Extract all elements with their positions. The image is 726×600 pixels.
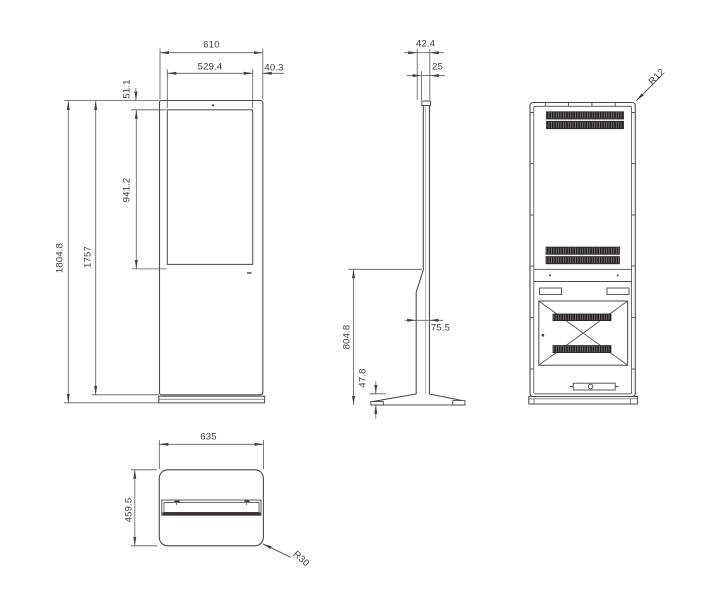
- rear-slot-left: [540, 288, 562, 295]
- dim-front-width-label: 610: [203, 39, 219, 50]
- dim-body-height-label: 1757: [82, 246, 93, 268]
- front-camera-dot: [212, 104, 214, 106]
- dim-side-offset-label: 40.3: [264, 62, 283, 73]
- dim-base-height-label: 47.8: [357, 368, 368, 387]
- rear-top-vent-grille: [547, 112, 624, 119]
- dim-depth-top-label: 42.4: [416, 38, 435, 49]
- dim-base-depth-label: 459.5: [123, 497, 134, 522]
- rear-panel-vent-grille: [553, 346, 611, 353]
- rear-slot-right: [607, 288, 629, 295]
- dim-base-width-label: 635: [200, 431, 216, 442]
- bottom-dimensions: [131, 440, 264, 546]
- dim-top-offset-label: 51.1: [121, 79, 132, 98]
- kiosk-technical-drawing: 610 529.4 40.3 51.1 941.2 1804.8 1757 42…: [0, 0, 726, 600]
- bottom-base-band-inner: [164, 503, 259, 513]
- side-view: [371, 101, 465, 405]
- side-pole-slant: [416, 270, 423, 292]
- r30-leader: [263, 544, 291, 557]
- front-dimensions: [64, 49, 284, 403]
- rear-handle: [573, 383, 615, 390]
- front-body-outline: [160, 101, 263, 395]
- dim-screen-height-label: 941.2: [122, 177, 133, 202]
- rear-screw-dot: [549, 274, 551, 276]
- rear-handle-lock: [588, 384, 593, 389]
- rear-view: [529, 103, 638, 405]
- dim-screen-width-label: 529.4: [198, 61, 223, 72]
- dim-stand-height-label: 804.8: [342, 324, 353, 349]
- dim-panel-depth-label: 25: [432, 61, 443, 72]
- bottom-view: [159, 470, 263, 546]
- rear-mid-vent-grille: [546, 247, 620, 254]
- front-screen-rect: [167, 110, 252, 265]
- side-top-cap: [422, 101, 431, 106]
- bottom-base-dark-strip: [162, 512, 260, 515]
- front-ir-dash: [247, 272, 252, 273]
- bottom-outline: [159, 470, 263, 546]
- rear-base-plate: [529, 397, 638, 405]
- dim-pole-depth-label: 75.5: [431, 322, 450, 333]
- drawing-linework: [0, 0, 726, 600]
- rear-panel-vent-grille: [553, 314, 611, 321]
- front-view: [159, 101, 265, 403]
- rear-mid-vent-grille: [546, 257, 620, 264]
- rear-screw-dot: [617, 274, 619, 276]
- rear-panel-dot: [542, 334, 545, 337]
- rear-top-vent-grille: [547, 121, 624, 128]
- dim-total-height-label: 1804.8: [55, 242, 66, 272]
